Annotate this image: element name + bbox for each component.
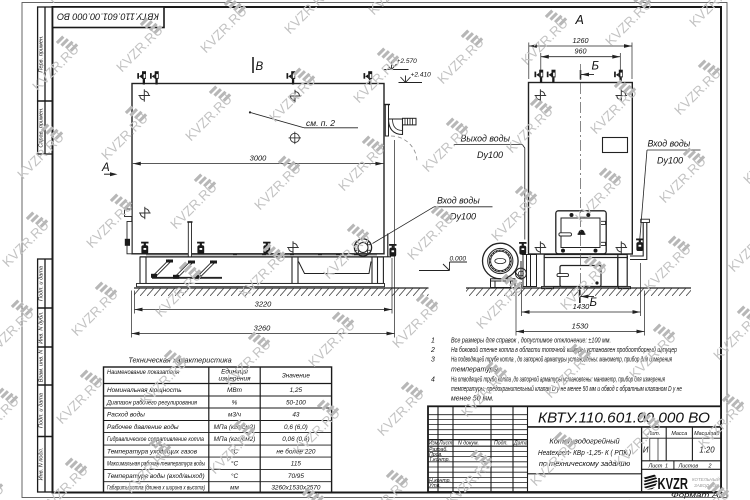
svg-text:0,6 (6,0): 0,6 (6,0) bbox=[284, 424, 308, 431]
svg-text:Изм: Изм bbox=[429, 441, 439, 447]
svg-text:КОТЕЛЬНЫЙ: КОТЕЛЬНЫЙ bbox=[692, 477, 720, 482]
svg-text:3: 3 bbox=[431, 357, 435, 364]
svg-text:115: 115 bbox=[291, 461, 302, 468]
svg-text:Лист: Лист bbox=[438, 441, 453, 447]
svg-text:Лист: Лист bbox=[648, 463, 663, 469]
svg-text:1530: 1530 bbox=[572, 321, 590, 330]
svg-text:Инв. N дубл.: Инв. N дубл. bbox=[38, 311, 44, 343]
svg-text:Dy100: Dy100 bbox=[477, 150, 503, 160]
svg-text:МВт: МВт bbox=[227, 387, 243, 394]
svg-text:3220: 3220 bbox=[255, 299, 273, 308]
svg-text:43: 43 bbox=[292, 412, 300, 419]
svg-text:Б: Б bbox=[592, 61, 600, 73]
svg-text:Все размеры для справок , допу: Все размеры для справок , допустимое отк… bbox=[451, 337, 611, 345]
svg-text:Вход воды: Вход воды bbox=[648, 139, 691, 149]
svg-text:На боковой стенке котла в обла: На боковой стенке котла в области топочн… bbox=[451, 346, 677, 354]
svg-text:Подп. и дата: Подп. и дата bbox=[38, 393, 44, 428]
svg-text:Рабочее давление воды: Рабочее давление воды bbox=[107, 423, 179, 431]
svg-text:%: % bbox=[232, 399, 238, 406]
svg-text:Б: Б bbox=[590, 297, 598, 309]
svg-text:А: А bbox=[575, 13, 584, 27]
svg-text:Дата: Дата bbox=[513, 441, 528, 447]
svg-text:1: 1 bbox=[665, 463, 668, 469]
svg-text:Вход воды: Вход воды bbox=[437, 196, 480, 206]
svg-text:70/95: 70/95 bbox=[288, 473, 304, 480]
svg-text:Листов: Листов bbox=[678, 463, 699, 469]
svg-text:°С: °С bbox=[231, 472, 239, 480]
svg-text:см. п. 2: см. п. 2 bbox=[306, 118, 335, 128]
svg-text:3260: 3260 bbox=[254, 323, 272, 332]
svg-text:Подп.: Подп. bbox=[494, 441, 508, 447]
svg-text:960: 960 bbox=[575, 47, 587, 56]
svg-text:Значение: Значение bbox=[282, 373, 310, 380]
svg-text:Dy100: Dy100 bbox=[657, 156, 683, 166]
svg-text:Масса: Масса bbox=[671, 431, 687, 437]
svg-text:А: А bbox=[101, 162, 110, 174]
svg-text:мм: мм bbox=[230, 485, 239, 492]
svg-text:1,25: 1,25 bbox=[290, 387, 303, 394]
svg-text:4: 4 bbox=[431, 377, 435, 384]
svg-text:Расход воды: Расход воды bbox=[107, 411, 145, 419]
svg-text:Утв.: Утв. bbox=[429, 483, 441, 489]
svg-text:3000: 3000 bbox=[250, 154, 268, 163]
svg-text:N докум.: N докум. bbox=[458, 441, 479, 447]
svg-text:3260х1530х2570: 3260х1530х2570 bbox=[271, 485, 320, 492]
svg-text:2: 2 bbox=[708, 463, 712, 469]
svg-text:Т.контр.: Т.контр. bbox=[429, 457, 450, 463]
svg-text:KVZR: KVZR bbox=[658, 476, 689, 493]
svg-text:1260: 1260 bbox=[573, 36, 589, 45]
svg-text:Подп. и дата: Подп. и дата bbox=[38, 266, 44, 301]
svg-text:50-100: 50-100 bbox=[286, 399, 306, 406]
svg-text:Инв. N подл.: Инв. N подл. bbox=[38, 448, 44, 481]
svg-text:2: 2 bbox=[430, 347, 435, 354]
svg-text:+2.410: +2.410 bbox=[411, 71, 432, 78]
svg-text:м3/ч: м3/ч bbox=[228, 412, 242, 419]
svg-text:КВТУ.110.601.00.000 ВО: КВТУ.110.601.00.000 ВО bbox=[538, 410, 710, 427]
svg-text:В: В bbox=[256, 61, 264, 73]
svg-text:КВТУ.110.601.00.000 ВО: КВТУ.110.601.00.000 ВО bbox=[57, 11, 159, 22]
svg-text:Взам. инв. N: Взам. инв. N bbox=[38, 349, 44, 383]
svg-text:1: 1 bbox=[431, 338, 435, 345]
svg-text:0.000: 0.000 bbox=[450, 256, 467, 263]
svg-text:Перв. примен.: Перв. примен. bbox=[38, 35, 44, 72]
